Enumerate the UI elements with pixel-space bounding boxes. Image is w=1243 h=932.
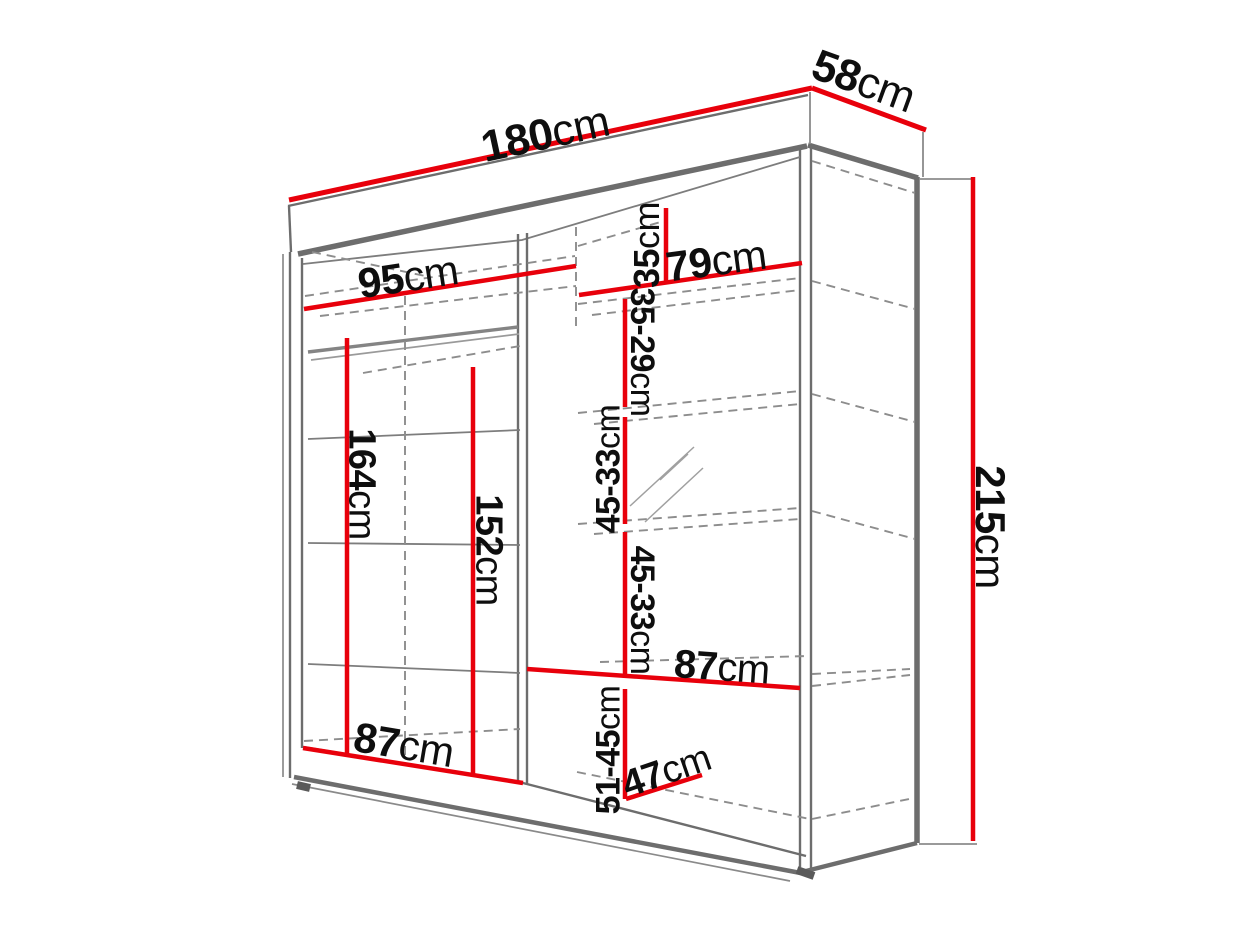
right-foot: [797, 870, 814, 876]
wardrobe-dimension-diagram: 180cm 58cm 215cm 95cm 79cm 35cm 35-29cm …: [0, 0, 1243, 932]
dimension-labels: 180cm 58cm 215cm 95cm 79cm 35cm 35-29cm …: [340, 40, 1014, 814]
label-middle-shelf-gap-1: 45-33cm: [589, 405, 627, 534]
label-left-hanging-height: 164cm: [340, 428, 382, 540]
label-total-width: 180cm: [477, 97, 614, 172]
label-top-shelf-gap: 35cm: [626, 202, 667, 288]
label-left-bottom-width: 87cm: [350, 713, 457, 776]
diagram-canvas: 180cm 58cm 215cm 95cm 79cm 35cm 35-29cm …: [0, 0, 1243, 932]
hanging-rail: [308, 327, 519, 360]
extension-lines: [810, 92, 977, 844]
center-divider: [518, 233, 527, 785]
mirror-glint: [630, 447, 703, 522]
label-total-depth: 58cm: [806, 40, 922, 122]
label-right-shelf-width: 79cm: [663, 231, 769, 291]
label-bottom-shelf-gap: 51-45cm: [589, 686, 627, 815]
label-bottom-depth: 47cm: [617, 737, 717, 806]
left-foot: [297, 785, 310, 788]
label-middle-shelf-gap-2: 45-33cm: [623, 546, 661, 675]
label-total-height: 215cm: [967, 465, 1014, 589]
label-left-top-width: 95cm: [355, 246, 462, 307]
label-right-hanging-height: 152cm: [467, 494, 509, 606]
label-lower-shelf-width: 87cm: [673, 642, 772, 693]
label-upper-shelf-gap: 35-29cm: [623, 288, 661, 417]
